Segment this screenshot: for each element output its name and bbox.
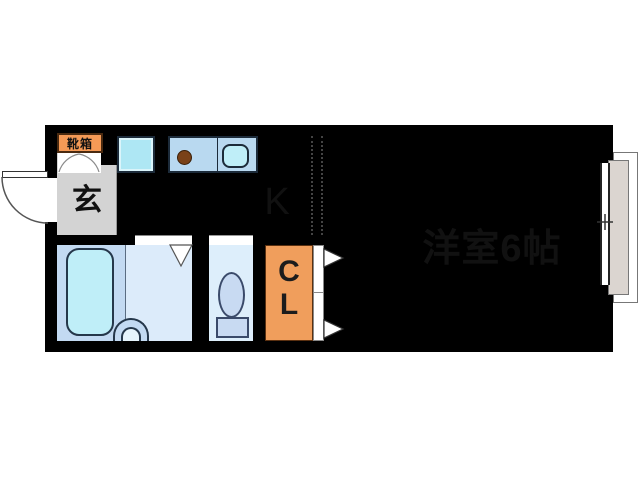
entrance-door-swing-arc	[2, 177, 48, 223]
closet-door-arrow-top	[324, 249, 343, 267]
floor-plan: 靴箱 C L	[0, 0, 640, 480]
kitchen-label: K	[249, 180, 305, 224]
shoe-cabinet-door-arc-left	[59, 154, 79, 172]
entrance-label: 玄	[57, 179, 117, 215]
shoe-cabinet-door-arc-right	[79, 154, 99, 172]
shoe-box: 靴箱	[57, 133, 103, 153]
shoe-box-label: 靴箱	[67, 135, 93, 152]
main-room-label: 洋室6帖	[392, 222, 592, 266]
bathroom-folding-door-icon	[170, 245, 192, 266]
closet-door-arrow-bottom	[324, 320, 343, 338]
